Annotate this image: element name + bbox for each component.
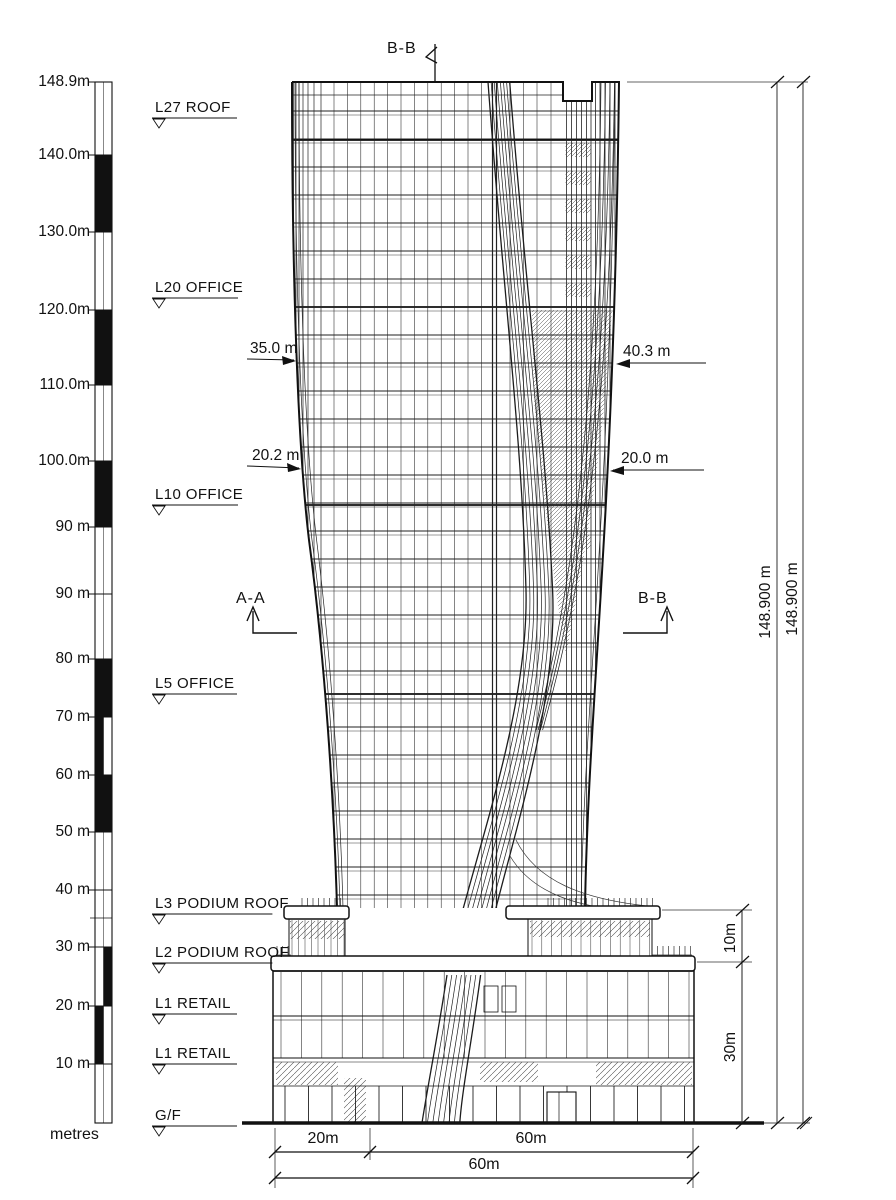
dim-35m: 35.0 m	[250, 340, 297, 358]
dim-height-outer: 148.900 m	[784, 554, 802, 644]
section-label-aa: A-A	[236, 590, 266, 608]
scale-tick-label: 90 m	[4, 585, 90, 603]
dim-base-total: 60m	[461, 1156, 507, 1174]
section-marker-bb	[623, 607, 673, 633]
dim-10m: 10m	[722, 913, 740, 963]
scale-tick-label: 80 m	[4, 650, 90, 668]
scale-tick-label: 40 m	[4, 881, 90, 899]
elevation-drawing: 148.9m140.0m130.0m120.0m110.0m100.0m90 m…	[0, 0, 896, 1200]
level-label: L27 ROOF	[155, 99, 231, 116]
scale-tick-label: 110.0m	[4, 376, 90, 394]
level-markers	[152, 118, 272, 1136]
level-label: L10 OFFICE	[155, 486, 243, 503]
scale-tick-label: 90 m	[4, 518, 90, 536]
section-label-bb: B-B	[638, 590, 668, 608]
scale-tick-label: 30 m	[4, 938, 90, 956]
scale-tick-label: 10 m	[4, 1055, 90, 1073]
section-marker-aa	[247, 607, 297, 633]
level-label: L20 OFFICE	[155, 279, 243, 296]
scale-tick-label: 130.0m	[4, 223, 90, 241]
dim-20-0m: 20.0 m	[621, 450, 668, 468]
dim-base-60m: 60m	[508, 1130, 554, 1148]
scale-tick-label: 70 m	[4, 708, 90, 726]
podium	[271, 898, 695, 1123]
level-label: L5 OFFICE	[155, 675, 234, 692]
dim-30m: 30m	[722, 1022, 740, 1072]
scale-tick-label: 100.0m	[4, 452, 90, 470]
scale-tick-label: 60 m	[4, 766, 90, 784]
entrance-door	[547, 1092, 576, 1123]
level-label: G/F	[155, 1107, 181, 1124]
scale-tick-label: 20 m	[4, 997, 90, 1015]
dim-height-inner: 148.900 m	[757, 557, 775, 647]
section-marker-top	[426, 44, 437, 82]
level-label: L2 PODIUM ROOF	[155, 944, 289, 961]
scale-tick-label: 140.0m	[4, 146, 90, 164]
scale-tick-label: 50 m	[4, 823, 90, 841]
scale-tick-label: 148.9m	[4, 73, 90, 91]
dim-40m: 40.3 m	[623, 343, 670, 361]
ground-line	[242, 1117, 812, 1129]
dim-base-20m: 20m	[300, 1130, 346, 1148]
scale-bar	[88, 82, 112, 1123]
facade-swoosh	[422, 975, 481, 1123]
dim-20-2m: 20.2 m	[252, 447, 299, 465]
level-label: L1 RETAIL	[155, 1045, 231, 1062]
scale-tick-label: 120.0m	[4, 301, 90, 319]
level-label: L3 PODIUM ROOF	[155, 895, 289, 912]
scale-unit-label: metres	[50, 1126, 99, 1144]
level-label: L1 RETAIL	[155, 995, 231, 1012]
section-label-top: B-B	[387, 40, 417, 58]
